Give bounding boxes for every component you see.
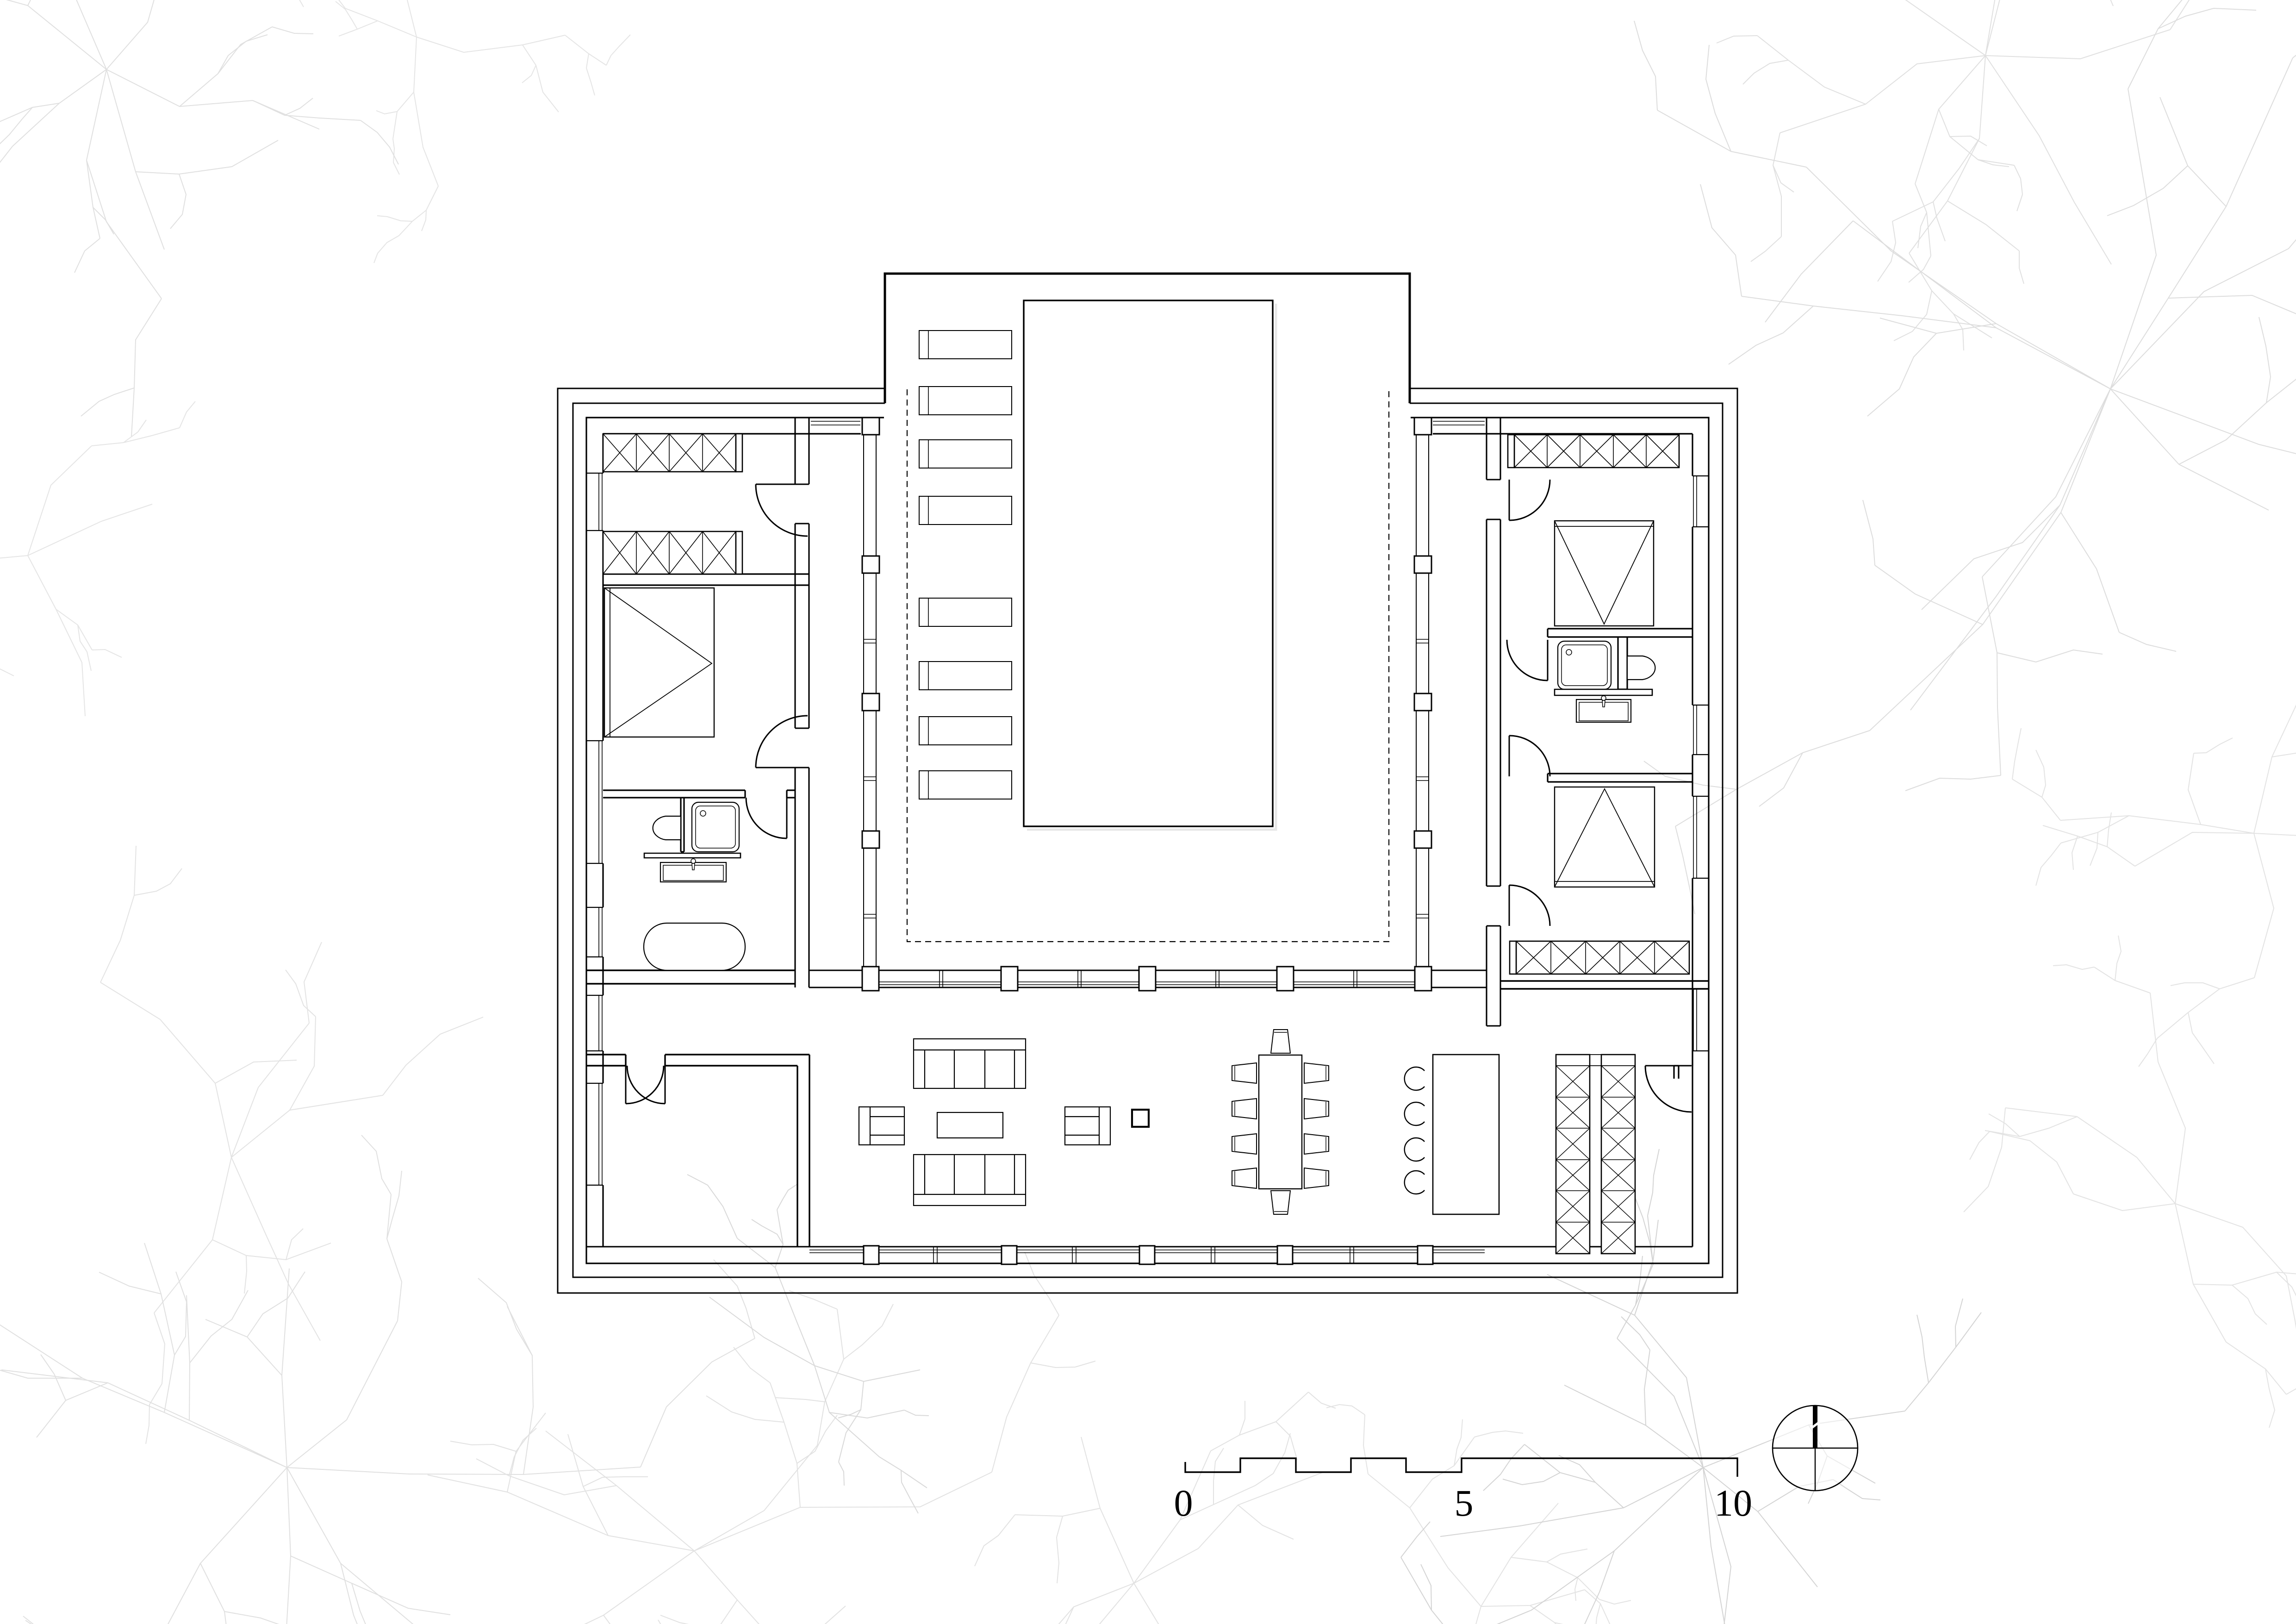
- svg-text:10: 10: [1714, 1482, 1752, 1524]
- svg-text:5: 5: [1455, 1482, 1474, 1524]
- svg-text:0: 0: [1174, 1482, 1193, 1524]
